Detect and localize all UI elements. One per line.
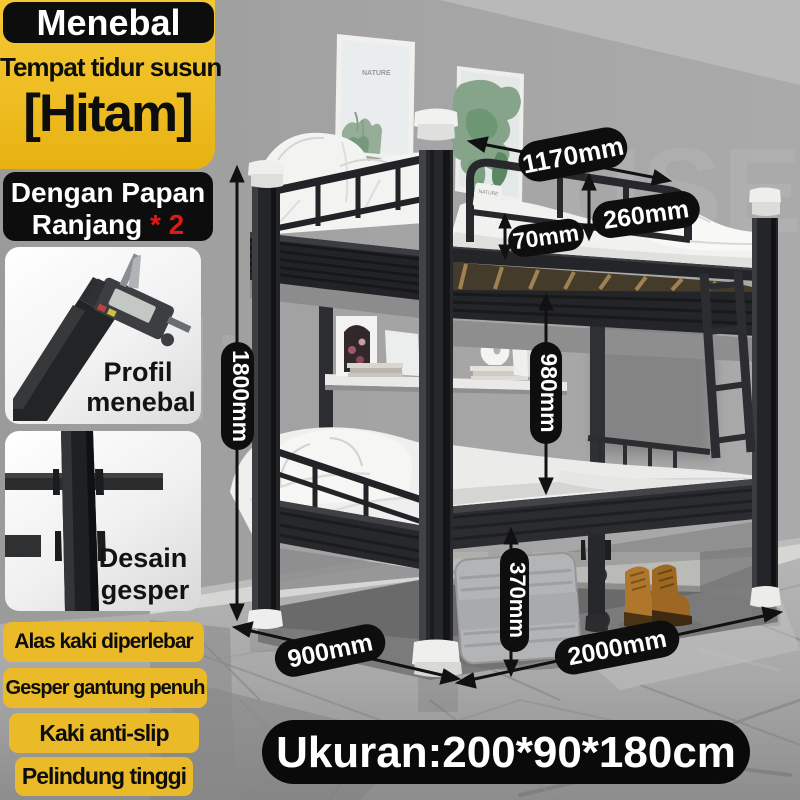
- svg-text:NATURE: NATURE: [362, 70, 391, 77]
- svg-text:Ukuran:200*90*180cm: Ukuran:200*90*180cm: [276, 728, 736, 777]
- svg-text:1800mm: 1800mm: [228, 350, 254, 442]
- svg-text:980mm: 980mm: [536, 353, 562, 432]
- svg-text:gesper: gesper: [101, 575, 190, 605]
- svg-text:Desain: Desain: [99, 543, 188, 573]
- svg-text:menebal: menebal: [86, 387, 196, 417]
- svg-text:370mm: 370mm: [505, 562, 530, 638]
- svg-text:Profil: Profil: [103, 357, 172, 387]
